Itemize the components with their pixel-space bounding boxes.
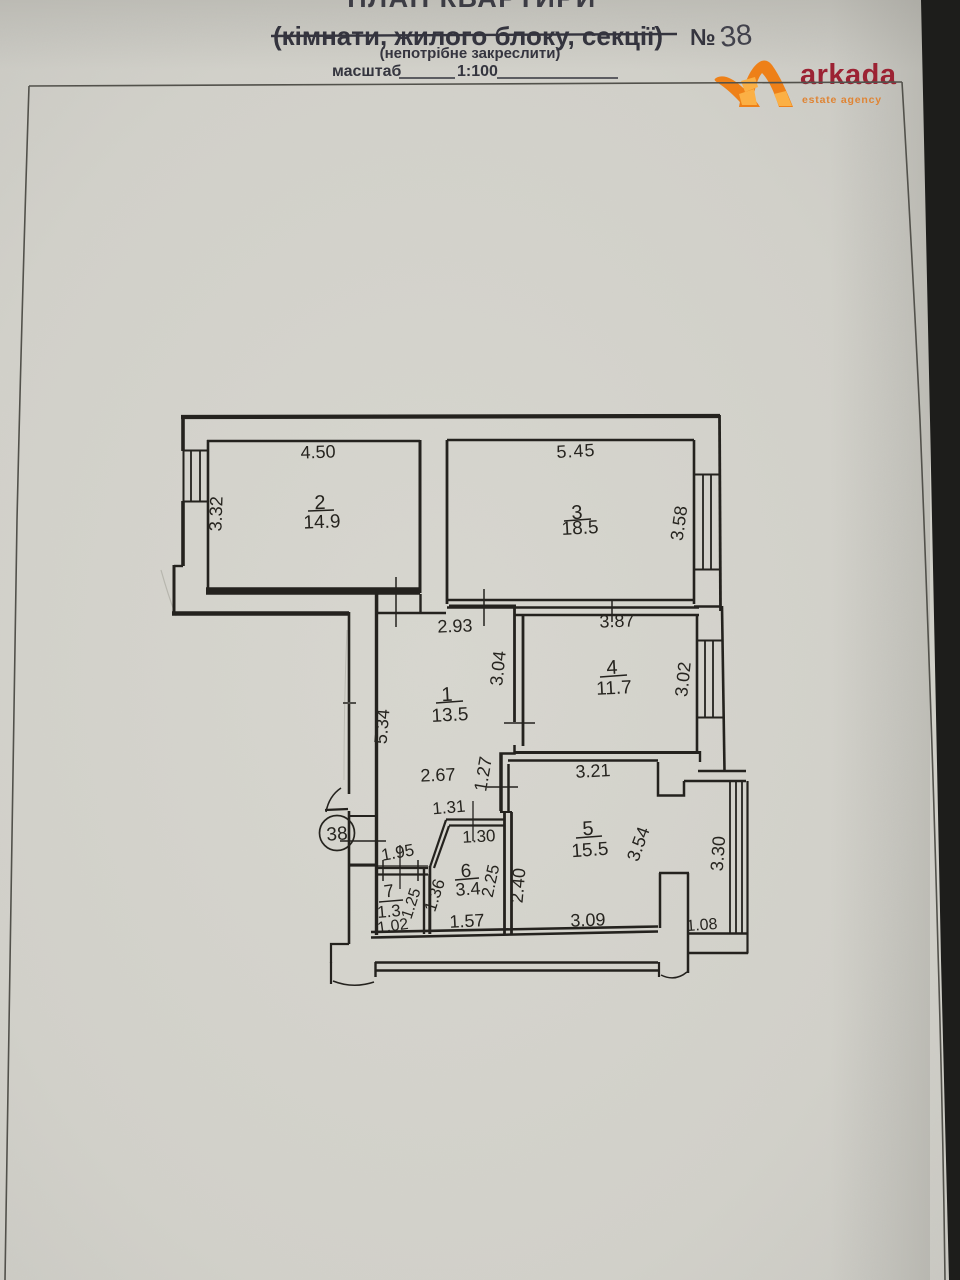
svg-text:5.45: 5.45 (556, 440, 596, 462)
svg-text:1.31: 1.31 (432, 797, 467, 819)
svg-text:3.87: 3.87 (599, 610, 635, 631)
svg-text:11.7: 11.7 (596, 677, 633, 700)
svg-text:1:100: 1:100 (457, 63, 498, 80)
svg-text:2.40: 2.40 (507, 867, 530, 904)
svg-text:3.04: 3.04 (486, 650, 510, 687)
svg-text:2.67: 2.67 (420, 764, 456, 785)
svg-text:13.5: 13.5 (431, 704, 469, 727)
svg-text:3.4: 3.4 (455, 878, 481, 900)
svg-text:15.5: 15.5 (571, 839, 609, 863)
svg-text:18.5: 18.5 (561, 517, 599, 540)
svg-text:ПЛАН КВАРТИРИ: ПЛАН КВАРТИРИ (347, 0, 596, 13)
svg-text:estate agency: estate agency (802, 94, 882, 106)
svg-text:4.50: 4.50 (300, 441, 336, 462)
svg-text:3.32: 3.32 (205, 496, 226, 532)
svg-text:1.57: 1.57 (449, 910, 485, 932)
svg-text:5.34: 5.34 (371, 708, 394, 745)
svg-text:2.93: 2.93 (437, 615, 473, 636)
svg-text:3.02: 3.02 (671, 661, 695, 698)
svg-text:3.09: 3.09 (570, 909, 606, 930)
svg-text:1.30: 1.30 (462, 826, 496, 847)
svg-text:1.08: 1.08 (686, 916, 718, 935)
svg-text:№: № (690, 24, 716, 50)
svg-text:38: 38 (326, 823, 349, 845)
svg-text:14.9: 14.9 (303, 511, 341, 533)
svg-text:масштаб: масштаб (332, 63, 401, 80)
svg-text:(непотрібне закреслити): (непотрібне закреслити) (380, 45, 561, 62)
svg-text:38: 38 (718, 19, 753, 54)
svg-text:arkada: arkada (800, 59, 897, 91)
svg-text:3.21: 3.21 (575, 760, 611, 782)
svg-text:3.30: 3.30 (707, 835, 729, 871)
